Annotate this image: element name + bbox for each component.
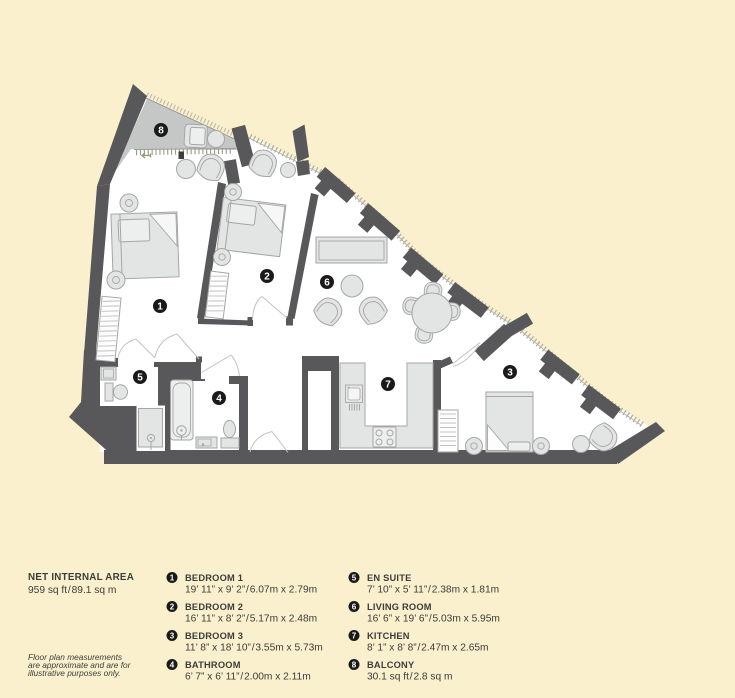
svg-text:6’ 7” x 6’ 11” / 2.00m x 2.11m: 6’ 7” x 6’ 11” / 2.00m x 2.11m xyxy=(185,672,311,683)
svg-text:BEDROOM 2: BEDROOM 2 xyxy=(185,602,243,612)
svg-text:LIVING ROOM: LIVING ROOM xyxy=(367,602,432,612)
svg-text:11’ 8” x 18’ 10” / 3.55m x 5.7: 11’ 8” x 18’ 10” / 3.55m x 5.73m xyxy=(185,643,323,654)
svg-text:1: 1 xyxy=(157,302,163,313)
svg-text:BALCONY: BALCONY xyxy=(367,660,415,670)
svg-text:2: 2 xyxy=(170,603,175,612)
svg-text:EN SUITE: EN SUITE xyxy=(367,573,411,583)
svg-text:16’ 11” x 8’ 2” / 5.17m x 2.48: 16’ 11” x 8’ 2” / 5.17m x 2.48m xyxy=(185,614,317,625)
svg-text:6: 6 xyxy=(324,278,330,289)
svg-text:30.1 sq ft / 2.8 sq m: 30.1 sq ft / 2.8 sq m xyxy=(367,672,453,683)
svg-text:8: 8 xyxy=(158,126,164,137)
svg-text:BATHROOM: BATHROOM xyxy=(185,660,241,670)
svg-text:4: 4 xyxy=(216,394,222,405)
svg-text:4: 4 xyxy=(170,661,175,670)
svg-text:5: 5 xyxy=(137,373,143,384)
svg-text:1: 1 xyxy=(170,574,175,583)
svg-text:illustrative purposes only.: illustrative purposes only. xyxy=(28,668,121,678)
svg-text:7’ 10” x 5’ 11” / 2.38m x 1.81: 7’ 10” x 5’ 11” / 2.38m x 1.81m xyxy=(367,585,499,596)
svg-text:BEDROOM 3: BEDROOM 3 xyxy=(185,631,243,641)
svg-text:KITCHEN: KITCHEN xyxy=(367,631,410,641)
svg-text:19’ 11” x 9’ 2” / 6.07m x 2.79: 19’ 11” x 9’ 2” / 6.07m x 2.79m xyxy=(185,585,317,596)
svg-text:8: 8 xyxy=(352,661,357,670)
svg-text:3: 3 xyxy=(170,632,175,641)
svg-text:7: 7 xyxy=(352,632,357,641)
svg-text:6: 6 xyxy=(352,603,357,612)
svg-text:16’ 6” x 19’ 6” / 5.03m x 5.95: 16’ 6” x 19’ 6” / 5.03m x 5.95m xyxy=(367,614,500,625)
svg-text:959 sq ft / 89.1 sq m: 959 sq ft / 89.1 sq m xyxy=(28,585,116,596)
svg-text:8’ 1” x 8’ 8” / 2.47m x 2.65m: 8’ 1” x 8’ 8” / 2.47m x 2.65m xyxy=(367,643,489,654)
svg-text:BEDROOM 1: BEDROOM 1 xyxy=(185,573,243,583)
svg-text:2: 2 xyxy=(264,272,270,283)
svg-text:3: 3 xyxy=(507,368,513,379)
svg-text:7: 7 xyxy=(385,380,391,391)
svg-text:5: 5 xyxy=(352,574,357,583)
svg-text:NET INTERNAL AREA: NET INTERNAL AREA xyxy=(28,572,134,583)
